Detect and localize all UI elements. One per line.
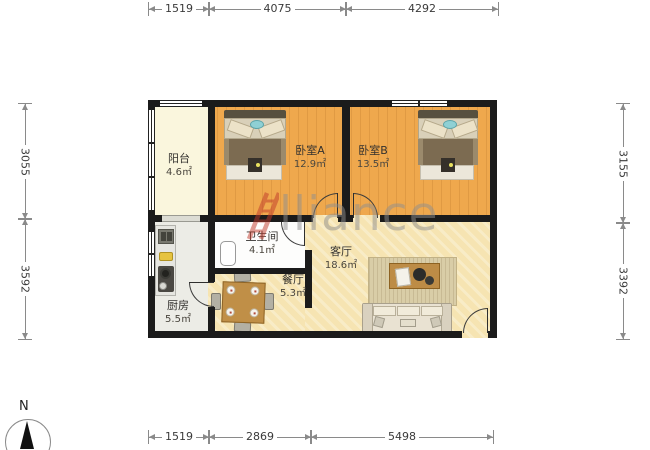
dim-right-2: 3392 (616, 222, 630, 340)
dim-label: 3392 (617, 264, 630, 298)
window-mullion (148, 142, 155, 144)
dim-label: 1519 (162, 2, 196, 16)
dim-line (295, 9, 347, 10)
dim-top-3: 4292 (345, 2, 499, 16)
dim-line (25, 179, 26, 220)
dim-label: 5498 (385, 430, 419, 444)
wall (380, 215, 497, 222)
sink-basin (161, 232, 166, 241)
sofa-pillow (400, 319, 416, 327)
room-area: 5.3㎡ (258, 287, 328, 301)
plate (226, 285, 235, 294)
floor-plan-page: 1519 4075 4292 1519 2869 5498 3055 3592 (0, 0, 650, 450)
dim-line (623, 104, 624, 147)
dim-label: 3155 (617, 147, 630, 181)
room-area: 5.5㎡ (143, 313, 213, 327)
sink-basin (167, 232, 172, 241)
stove (158, 266, 174, 292)
room-name: 客厅 (306, 245, 376, 259)
pillow-teal (250, 120, 264, 129)
room-label-bedroom-a: 卧室A 12.9㎡ (275, 144, 345, 172)
room-name: 卫生间 (227, 230, 297, 244)
window-mullion (418, 100, 420, 107)
dim-line (209, 437, 243, 438)
compass-needle-icon (20, 421, 34, 449)
room-area: 12.9㎡ (275, 158, 345, 172)
table-card (395, 267, 411, 287)
room-label-dining: 餐厅 5.3㎡ (258, 273, 328, 301)
window (160, 100, 202, 107)
bed-bench-box (248, 158, 262, 172)
dim-line (623, 181, 624, 224)
coffee-table (389, 263, 440, 289)
dim-line (623, 223, 624, 264)
wall (488, 331, 497, 338)
plate (249, 308, 258, 317)
dim-line (623, 298, 624, 339)
plate (226, 307, 235, 316)
kitchen-door-leaf (189, 282, 214, 283)
dim-label: 3055 (19, 145, 32, 179)
dim-bottom-2: 2869 (208, 430, 312, 444)
bed-bench-box (441, 158, 455, 172)
cutting-board (159, 252, 173, 261)
dim-line (25, 104, 26, 145)
sofa-pillow (373, 316, 385, 328)
dim-line (439, 9, 498, 10)
sofa-cushion (421, 306, 443, 316)
wall (338, 215, 353, 222)
room-label-living: 客厅 18.6㎡ (306, 245, 376, 273)
bed-pillow-area (418, 118, 478, 139)
bedroom-b-door-leaf (353, 193, 354, 218)
dim-line (346, 9, 405, 10)
room-label-kitchen: 厨房 5.5㎡ (143, 299, 213, 327)
dim-line (25, 219, 26, 262)
window-mullion (148, 253, 155, 255)
dim-left-2: 3592 (18, 218, 32, 340)
dim-left-1: 3055 (18, 103, 32, 220)
dim-line (149, 9, 162, 10)
kitchen-counter (155, 225, 176, 296)
wall (148, 215, 162, 222)
dim-line (311, 437, 385, 438)
room-area: 4.1㎡ (227, 244, 297, 258)
pot (160, 268, 171, 279)
room-area: 4.6㎡ (149, 166, 209, 180)
dim-label: 1519 (162, 430, 196, 444)
bed-headboard (224, 110, 286, 118)
entrance-door-leaf (487, 308, 488, 333)
wall (148, 331, 462, 338)
dim-top-2: 4075 (208, 2, 347, 16)
wall (200, 215, 313, 222)
sofa-armrest (363, 304, 373, 332)
dim-bottom-1: 1519 (148, 430, 210, 444)
pillow-teal (443, 120, 457, 129)
room-label-balcony: 阳台 4.6㎡ (149, 152, 209, 180)
room-area: 18.6㎡ (306, 259, 376, 273)
dim-label: 3592 (19, 262, 32, 296)
dim-line (209, 9, 261, 10)
sofa (362, 303, 452, 333)
room-name: 卧室A (275, 144, 345, 158)
room-name: 厨房 (143, 299, 213, 313)
dim-right-1: 3155 (616, 103, 630, 224)
wall (208, 100, 215, 282)
bed-headboard (418, 110, 478, 118)
room-name: 阳台 (149, 152, 209, 166)
bathroom-door-leaf (304, 222, 305, 246)
dim-label: 4075 (261, 2, 295, 16)
pan (159, 282, 167, 290)
dim-line (149, 437, 162, 438)
dim-line (25, 296, 26, 339)
sofa-cushion (373, 306, 396, 316)
table-decor (425, 276, 434, 285)
room-label-bedroom-b: 卧室B 13.5㎡ (338, 144, 408, 172)
bed-pillow-area (224, 118, 286, 139)
room-name: 卧室B (338, 144, 408, 158)
sofa-cushion (397, 306, 420, 316)
bedroom-a-door-leaf (337, 193, 338, 218)
balcony-opening (162, 215, 200, 222)
room-area: 13.5㎡ (338, 158, 408, 172)
compass-north-label: N (19, 399, 29, 414)
dim-top-1: 1519 (148, 2, 210, 16)
bed-b (418, 110, 478, 180)
dim-line (277, 437, 311, 438)
dim-label: 2869 (243, 430, 277, 444)
kitchen-sink (158, 229, 174, 244)
dim-line (419, 437, 493, 438)
dim-label: 4292 (405, 2, 439, 16)
room-name: 餐厅 (258, 273, 328, 287)
room-label-bathroom: 卫生间 4.1㎡ (227, 230, 297, 258)
dim-bottom-3: 5498 (310, 430, 494, 444)
